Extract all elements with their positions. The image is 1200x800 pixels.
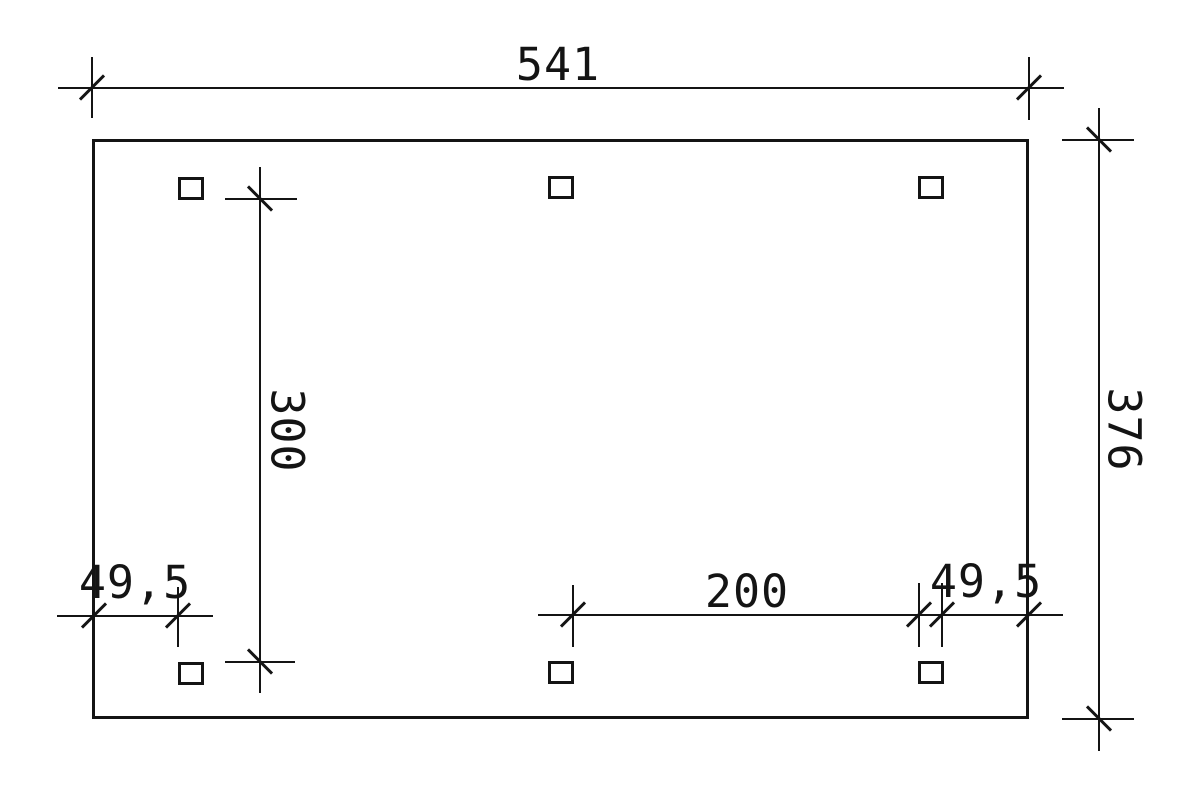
dim-line-bottom (538, 614, 1063, 616)
post-bottom-left (178, 662, 204, 685)
outline-rectangle (92, 139, 1029, 719)
dim-text-right-offset: 49,5 (896, 559, 1076, 604)
dim-text-541: 541 (468, 42, 648, 87)
dim-line-left-offset (57, 615, 213, 617)
dim-text-left-offset: 49,5 (45, 560, 225, 605)
dim-text-300: 300 (265, 341, 310, 521)
dim-text-376: 376 (1102, 340, 1147, 520)
post-bottom-middle (548, 661, 574, 684)
post-top-right (918, 176, 944, 199)
dim-text-200: 200 (657, 569, 837, 614)
post-top-left (178, 177, 204, 200)
post-top-middle (548, 176, 574, 199)
post-bottom-right (918, 661, 944, 684)
foundation-plan-drawing: 541 376 300 49,5 200 49,5 (0, 0, 1200, 800)
